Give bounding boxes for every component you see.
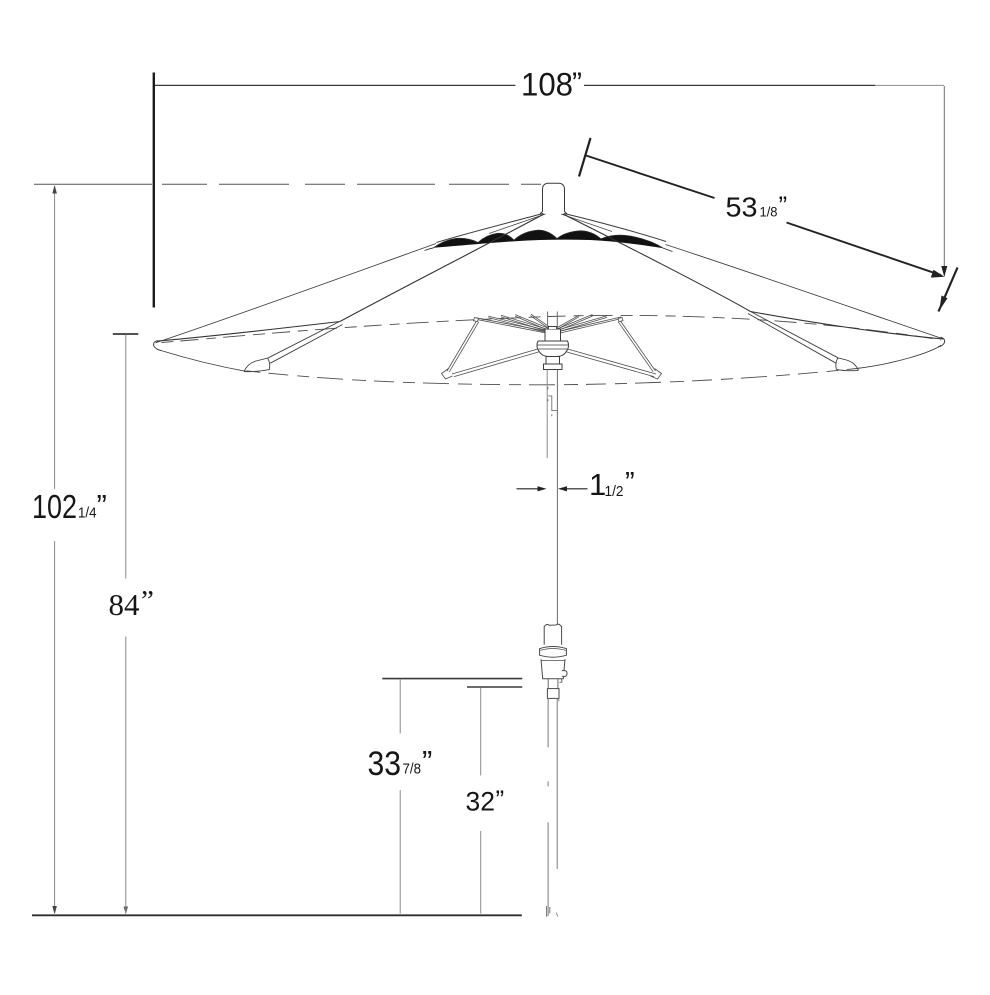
svg-text:53: 53 xyxy=(726,192,758,223)
svg-text:”: ” xyxy=(97,488,107,523)
svg-text:”: ” xyxy=(572,67,582,100)
svg-text:1/4: 1/4 xyxy=(78,505,97,522)
svg-text:84: 84 xyxy=(109,587,141,622)
svg-text:”: ” xyxy=(496,785,505,815)
svg-text:”: ” xyxy=(779,191,788,221)
svg-text:108: 108 xyxy=(521,67,573,103)
svg-text:1/2: 1/2 xyxy=(605,484,624,500)
svg-text:”: ” xyxy=(141,585,154,617)
svg-text:”: ” xyxy=(625,467,635,499)
svg-text:”: ” xyxy=(422,744,432,779)
svg-text:7/8: 7/8 xyxy=(403,761,422,778)
svg-text:1/8: 1/8 xyxy=(760,205,778,220)
svg-text:32: 32 xyxy=(466,787,496,817)
svg-text:33: 33 xyxy=(368,745,402,783)
svg-text:102: 102 xyxy=(32,489,77,526)
